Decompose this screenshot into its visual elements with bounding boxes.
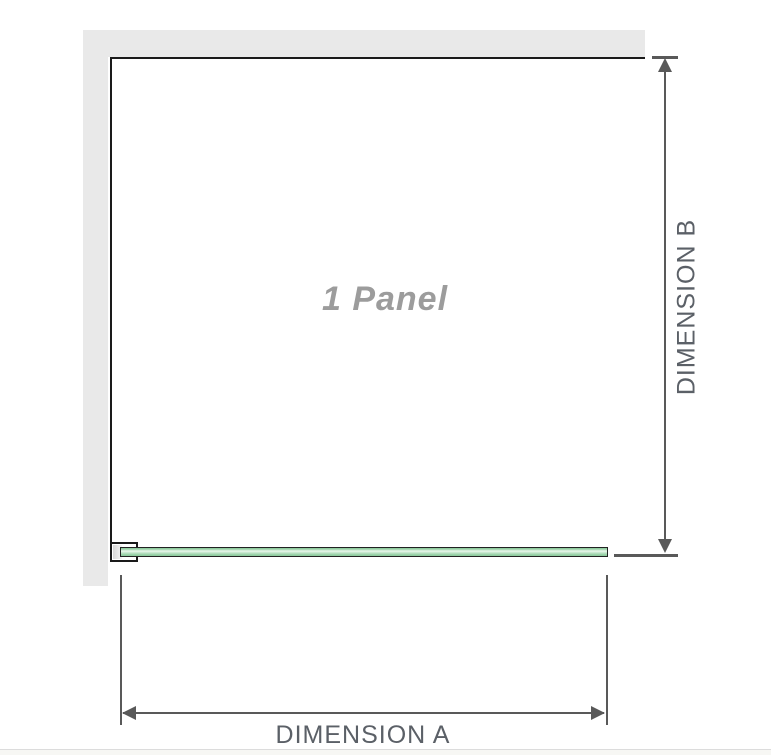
panel-label: 1 Panel <box>322 280 448 319</box>
wall-top-band <box>83 30 645 57</box>
arrow-left-icon <box>122 706 136 720</box>
dimension-a-right-extension-line <box>606 575 608 725</box>
footer-strip <box>0 750 771 755</box>
dimension-b-line <box>664 60 666 550</box>
dimension-a-line <box>123 712 604 714</box>
arrow-down-icon <box>658 539 672 553</box>
dimension-b-bottom-tick <box>614 554 678 557</box>
dimension-a-left-extension-line <box>120 575 122 725</box>
arrow-right-icon <box>591 706 605 720</box>
arrow-up-icon <box>658 58 672 72</box>
panel-top-edge <box>110 57 645 59</box>
shower-panel-diagram: 1 Panel DIMENSION B DIMENSION A <box>0 0 771 755</box>
dimension-b-label: DIMENSION B <box>673 219 702 395</box>
glass-panel-bar <box>120 547 608 557</box>
dimension-a-label: DIMENSION A <box>276 721 451 750</box>
panel-left-edge <box>110 57 112 542</box>
wall-left-band <box>83 30 108 586</box>
